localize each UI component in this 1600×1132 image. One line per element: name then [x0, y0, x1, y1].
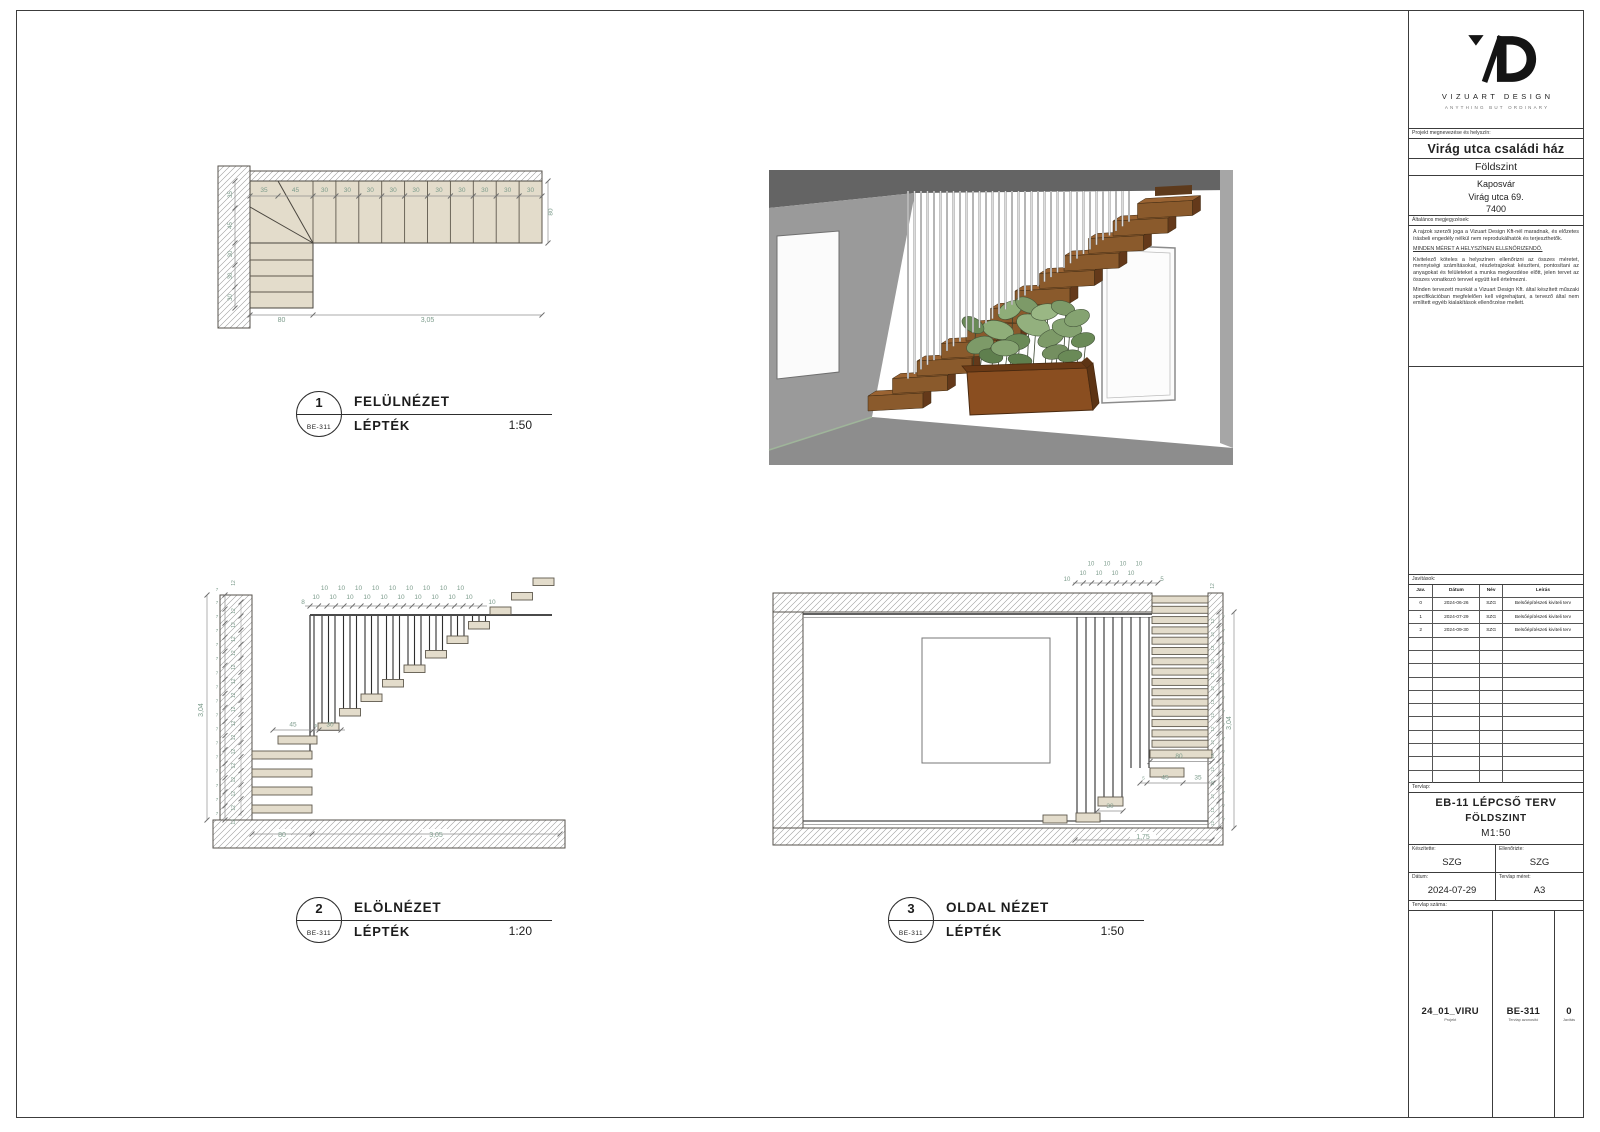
logo-monogram-icon — [1453, 30, 1539, 88]
project-code-cell: 24_01_VIRU Projekt — [1409, 911, 1493, 1118]
svg-text:10: 10 — [338, 585, 346, 592]
svg-text:12: 12 — [231, 636, 237, 642]
svg-text:7: 7 — [1223, 709, 1226, 714]
svg-text:12: 12 — [231, 706, 237, 712]
svg-text:7: 7 — [216, 797, 219, 802]
svg-text:7: 7 — [1223, 817, 1226, 822]
svg-text:12: 12 — [231, 735, 237, 741]
svg-text:12: 12 — [231, 622, 237, 628]
svg-text:10: 10 — [1120, 562, 1127, 568]
svg-text:30: 30 — [228, 272, 234, 279]
svg-text:12: 12 — [1210, 780, 1215, 786]
svg-text:10: 10 — [372, 585, 380, 592]
svg-text:12: 12 — [1210, 767, 1215, 773]
svg-text:7: 7 — [216, 698, 219, 703]
svg-text:80: 80 — [278, 317, 286, 324]
revision-number-sub: Javítás — [1563, 1018, 1575, 1022]
sheet-number-label: Tervlap száma: — [1409, 901, 1583, 911]
notes-label: Általános megjegyzések: — [1409, 216, 1583, 226]
svg-text:7: 7 — [1223, 695, 1226, 700]
company-logo: VIZUART DESIGN ANYTHING BUT ORDINARY — [1409, 11, 1583, 129]
scale-label: LÉPTÉK — [354, 924, 410, 939]
view-number-badge: 1 BE-311 — [296, 391, 342, 437]
perspective-render — [755, 160, 1235, 465]
svg-text:10: 10 — [1096, 571, 1103, 577]
brand-name: VIZUART DESIGN — [1438, 92, 1553, 101]
svg-text:7: 7 — [1223, 749, 1226, 754]
plan-view-drawing: 354530303030303030303030354530303080803,… — [215, 163, 555, 335]
svg-text:10: 10 — [1104, 562, 1111, 568]
svg-text:3,05: 3,05 — [429, 832, 443, 839]
svg-text:10: 10 — [448, 594, 456, 601]
date-cell: Dátum: 2024-07-29 — [1409, 873, 1496, 900]
svg-text:7: 7 — [216, 755, 219, 760]
view-label-1: 1 BE-311 FELÜLNÉZET LÉPTÉK 1:50 — [296, 391, 552, 439]
svg-text:10: 10 — [423, 585, 431, 592]
titleblock-spacer — [1409, 367, 1583, 575]
svg-text:12: 12 — [231, 608, 237, 614]
scale-value: 1:50 — [1101, 924, 1124, 939]
svg-text:12: 12 — [1210, 807, 1215, 813]
project-label: Projekt megnevezése és helyszín: — [1409, 129, 1583, 139]
svg-text:12: 12 — [1210, 632, 1215, 638]
svg-text:10: 10 — [1112, 571, 1119, 577]
svg-text:12: 12 — [231, 650, 237, 656]
svg-text:12: 12 — [231, 580, 237, 586]
svg-text:30: 30 — [527, 187, 535, 194]
svg-text:10: 10 — [414, 594, 422, 601]
svg-text:12: 12 — [231, 819, 237, 825]
revisions-label: Javítások: — [1409, 575, 1583, 585]
svg-text:30: 30 — [412, 187, 420, 194]
view-ref: BE-311 — [297, 930, 341, 937]
svg-text:7: 7 — [1223, 628, 1226, 633]
view-number: 1 — [297, 395, 341, 410]
view-title: OLDAL NÉZET — [946, 900, 1049, 915]
svg-text:7: 7 — [216, 600, 219, 605]
svg-text:10: 10 — [1088, 562, 1095, 568]
view-title: FELÜLNÉZET — [354, 394, 450, 409]
view-title: ELÖLNÉZET — [354, 900, 441, 915]
svg-text:7: 7 — [216, 811, 219, 816]
svg-text:7: 7 — [216, 670, 219, 675]
svg-text:12: 12 — [1210, 713, 1215, 719]
svg-text:10: 10 — [488, 599, 496, 606]
scale-value: 1:20 — [509, 924, 532, 939]
svg-text:12: 12 — [1210, 740, 1215, 746]
svg-text:45: 45 — [289, 722, 297, 729]
svg-text:7: 7 — [216, 587, 219, 592]
svg-text:80: 80 — [1175, 753, 1183, 760]
svg-text:35: 35 — [1194, 775, 1202, 782]
svg-text:30: 30 — [228, 250, 234, 257]
svg-text:45: 45 — [228, 222, 234, 229]
svg-text:7: 7 — [1223, 736, 1226, 741]
svg-text:30: 30 — [458, 187, 466, 194]
svg-text:12: 12 — [1210, 583, 1216, 589]
svg-text:12: 12 — [231, 791, 237, 797]
svg-text:80: 80 — [548, 208, 555, 216]
svg-text:7: 7 — [1223, 641, 1226, 646]
sheet-title-box: EB-11 LÉPCSŐ TERV FÖLDSZINT M1:50 — [1409, 793, 1583, 845]
svg-text:12: 12 — [1210, 645, 1215, 651]
view-number: 3 — [889, 901, 933, 916]
svg-text:7: 7 — [1223, 776, 1226, 781]
svg-text:10: 10 — [397, 594, 405, 601]
checked-by-value: SZG — [1530, 857, 1550, 868]
svg-text:7: 7 — [1223, 668, 1226, 673]
svg-text:10: 10 — [346, 594, 354, 601]
svg-text:5: 5 — [1142, 776, 1145, 781]
svg-text:10: 10 — [1064, 577, 1071, 583]
svg-text:30: 30 — [326, 722, 334, 729]
revision-number-cell: 0 Javítás — [1555, 911, 1583, 1118]
svg-text:7: 7 — [216, 614, 219, 619]
made-by-label: Készítette: — [1412, 846, 1436, 852]
svg-text:80: 80 — [278, 832, 286, 839]
svg-text:10: 10 — [329, 594, 337, 601]
sheet-id-cell: BE-311 Tervlap azonosító — [1493, 911, 1556, 1118]
date-label: Dátum: — [1412, 874, 1428, 880]
svg-text:5: 5 — [1160, 577, 1164, 583]
scale-label: LÉPTÉK — [354, 418, 410, 433]
project-code: 24_01_VIRU — [1422, 1006, 1479, 1017]
svg-text:12: 12 — [1210, 672, 1215, 678]
view-label-3: 3 BE-311 OLDAL NÉZET LÉPTÉK 1:50 — [888, 897, 1144, 945]
size-value: A3 — [1534, 885, 1546, 896]
svg-text:3,04: 3,04 — [198, 703, 205, 717]
svg-text:7: 7 — [1223, 803, 1226, 808]
svg-text:10: 10 — [431, 594, 439, 601]
view-number-badge: 3 BE-311 — [888, 897, 934, 943]
svg-text:30: 30 — [504, 187, 512, 194]
view-number-badge: 2 BE-311 — [296, 897, 342, 943]
svg-text:7: 7 — [1223, 790, 1226, 795]
authors-row: Készítette: SZG Ellenőrizte: SZG — [1409, 845, 1583, 873]
svg-text:7: 7 — [216, 656, 219, 661]
brand-tagline: ANYTHING BUT ORDINARY — [1443, 105, 1550, 110]
view-label-2: 2 BE-311 ELÖLNÉZET LÉPTÉK 1:20 — [296, 897, 552, 945]
svg-text:30: 30 — [344, 187, 352, 194]
svg-text:30: 30 — [481, 187, 489, 194]
svg-text:10: 10 — [380, 594, 388, 601]
svg-text:10: 10 — [363, 594, 371, 601]
svg-text:5: 5 — [315, 723, 318, 728]
svg-text:3,04: 3,04 — [1226, 716, 1233, 730]
svg-text:7: 7 — [216, 727, 219, 732]
size-label: Tervlap méret: — [1499, 874, 1531, 880]
svg-text:35: 35 — [260, 187, 268, 194]
checked-by-label: Ellenőrizte: — [1499, 846, 1524, 852]
svg-text:12: 12 — [1210, 699, 1215, 705]
svg-text:12: 12 — [1210, 821, 1215, 827]
svg-text:10: 10 — [440, 585, 448, 592]
svg-text:30: 30 — [1106, 803, 1114, 810]
svg-text:12: 12 — [1210, 753, 1215, 759]
svg-text:7: 7 — [216, 783, 219, 788]
sheet-subtitle: FÖLDSZINT — [1409, 813, 1583, 824]
svg-text:7: 7 — [216, 684, 219, 689]
sheet-id: BE-311 — [1507, 1006, 1541, 1017]
svg-text:10: 10 — [389, 585, 397, 592]
title-block: VIZUART DESIGN ANYTHING BUT ORDINARY Pro… — [1408, 10, 1584, 1118]
svg-text:7: 7 — [216, 712, 219, 717]
svg-text:3,05: 3,05 — [421, 317, 435, 324]
date-size-row: Dátum: 2024-07-29 Tervlap méret: A3 — [1409, 873, 1583, 901]
svg-text:7: 7 — [216, 741, 219, 746]
view-number: 2 — [297, 901, 341, 916]
svg-text:12: 12 — [231, 777, 237, 783]
sheet-codes-row: 24_01_VIRU Projekt BE-311 Tervlap azonos… — [1409, 911, 1583, 1118]
svg-text:12: 12 — [231, 720, 237, 726]
svg-text:10: 10 — [457, 585, 465, 592]
svg-text:12: 12 — [1210, 618, 1215, 624]
date-value: 2024-07-29 — [1428, 885, 1477, 896]
scale-value: 1:50 — [509, 418, 532, 433]
svg-text:10: 10 — [355, 585, 363, 592]
sheet-scale: M1:50 — [1409, 828, 1583, 839]
front-view-drawing: 8101010101010101010101010101010101010101… — [195, 553, 575, 853]
svg-text:7: 7 — [1223, 682, 1226, 687]
made-by-cell: Készítette: SZG — [1409, 845, 1496, 872]
svg-text:7: 7 — [216, 628, 219, 633]
svg-text:7: 7 — [216, 769, 219, 774]
revision-number: 0 — [1566, 1006, 1572, 1017]
svg-text:12: 12 — [231, 805, 237, 811]
svg-text:7: 7 — [1223, 655, 1226, 660]
svg-text:10: 10 — [1136, 562, 1143, 568]
svg-text:12: 12 — [231, 749, 237, 755]
view-ref: BE-311 — [297, 424, 341, 431]
svg-text:12: 12 — [231, 664, 237, 670]
svg-text:12: 12 — [231, 678, 237, 684]
svg-text:45: 45 — [292, 187, 300, 194]
sheet-label: Tervlap: — [1409, 783, 1583, 793]
svg-text:1,75: 1,75 — [1136, 834, 1150, 841]
project-level: Földszint — [1409, 159, 1583, 176]
project-name: Virág utca családi ház — [1409, 139, 1583, 159]
svg-text:10: 10 — [465, 594, 473, 601]
svg-text:30: 30 — [390, 187, 398, 194]
svg-text:45: 45 — [1161, 775, 1169, 782]
project-address: KaposvárVirág utca 69.7400 — [1409, 176, 1583, 216]
svg-text:12: 12 — [1210, 726, 1215, 732]
svg-text:10: 10 — [1128, 571, 1135, 577]
svg-text:12: 12 — [231, 692, 237, 698]
svg-text:10: 10 — [406, 585, 414, 592]
svg-text:8: 8 — [301, 599, 305, 606]
svg-text:30: 30 — [367, 187, 375, 194]
svg-text:10: 10 — [321, 585, 329, 592]
svg-text:12: 12 — [1210, 659, 1215, 665]
scale-label: LÉPTÉK — [946, 924, 1002, 939]
svg-text:30: 30 — [321, 187, 329, 194]
svg-text:30: 30 — [435, 187, 443, 194]
project-code-sub: Projekt — [1444, 1018, 1456, 1022]
svg-text:7: 7 — [1223, 614, 1226, 619]
sheet-id-sub: Tervlap azonosító — [1508, 1018, 1538, 1022]
svg-text:7: 7 — [216, 642, 219, 647]
svg-text:12: 12 — [1210, 686, 1215, 692]
size-cell: Tervlap méret: A3 — [1496, 873, 1583, 900]
checked-by-cell: Ellenőrizte: SZG — [1496, 845, 1583, 872]
svg-text:12: 12 — [1210, 794, 1215, 800]
svg-text:10: 10 — [312, 594, 320, 601]
svg-text:12: 12 — [231, 763, 237, 769]
general-notes: A rajzok szerzői joga a Vizuart Design K… — [1409, 226, 1583, 367]
side-view-drawing: 8054535301010101010101010105127127127127… — [745, 550, 1250, 850]
sheet-title: EB-11 LÉPCSŐ TERV — [1409, 797, 1583, 809]
made-by-value: SZG — [1442, 857, 1462, 868]
svg-text:10: 10 — [1080, 571, 1087, 577]
svg-text:7: 7 — [1223, 763, 1226, 768]
svg-text:35: 35 — [228, 191, 234, 198]
revisions-table: Jav.DátumNévLeírás02024-06-26SZGBelsőépí… — [1409, 585, 1583, 783]
svg-text:30: 30 — [228, 294, 234, 301]
view-ref: BE-311 — [889, 930, 933, 937]
